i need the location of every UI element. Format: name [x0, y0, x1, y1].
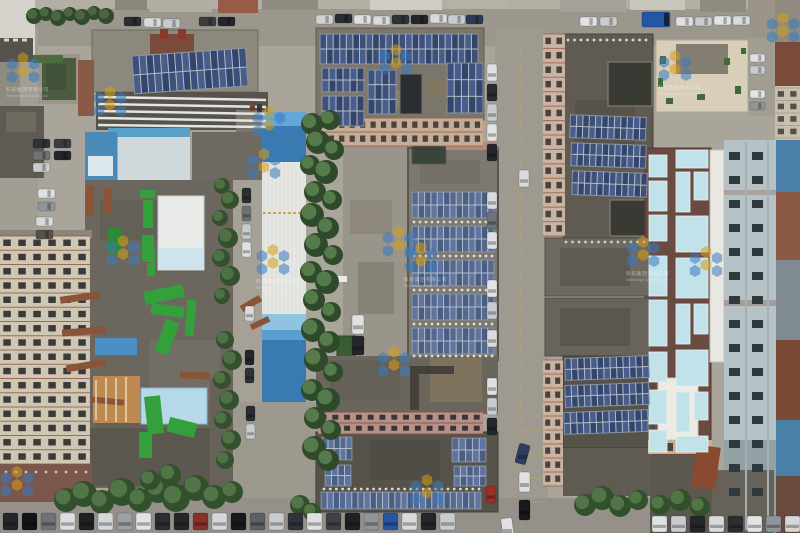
cars-bottom-row — [326, 513, 341, 530]
solar-topcenter-strip-cell — [340, 50, 346, 64]
solar-br-2-cell — [572, 397, 578, 407]
white-roof-blue-part — [158, 248, 204, 270]
solar-rb-1-cell — [609, 117, 615, 128]
skylight-panel — [694, 392, 708, 420]
solar-br-3-cell — [629, 411, 635, 421]
solar-br-1-cell — [617, 368, 623, 378]
mount-dot — [471, 488, 474, 491]
solar-rb-1-cell — [577, 115, 583, 126]
solar-tc-a — [322, 68, 364, 92]
facade-bottomright-window — [555, 392, 560, 398]
solar-bc-right-b-cell — [480, 467, 485, 476]
cars-courtyard — [245, 306, 254, 321]
solar-br-1-cell — [617, 357, 623, 367]
solar-br-1-cell — [565, 359, 571, 369]
facade-bottomleft-window — [18, 439, 26, 445]
cars-left-road — [54, 151, 71, 160]
solar-tc-c-cell — [376, 71, 382, 85]
mount-dot — [479, 289, 482, 292]
solar-rb-2-cell — [634, 157, 640, 168]
solar-br-1-cell — [630, 357, 636, 367]
cars-bottom-row — [155, 513, 170, 530]
solar-bc-left-a-cell — [335, 438, 340, 449]
solar-tc-b-cell — [344, 112, 350, 126]
facade-bottomleft-window — [3, 339, 11, 345]
cars-right-road — [486, 486, 496, 503]
facade-topcenter-window — [360, 136, 365, 142]
facade-topcenter-window — [444, 122, 449, 128]
facade-bottomright-window — [545, 406, 550, 412]
trees-right-column-highlight — [308, 132, 323, 147]
solar-rb-1-cell — [634, 117, 640, 128]
facade-farright-cream-window — [790, 91, 796, 97]
facade-topcenter-window — [381, 122, 386, 128]
solar-topcenter-strip-cell — [386, 35, 392, 49]
mount-dot — [437, 289, 440, 292]
facade-bottomleft-window — [78, 411, 86, 417]
solar-topleft-cell — [183, 72, 190, 90]
solar-br-1-cell — [630, 368, 636, 378]
cars-right-road — [487, 398, 497, 415]
solar-rb-2-cell — [597, 144, 603, 155]
green-equipment — [143, 200, 153, 228]
cars-right-road-windshield — [488, 153, 496, 156]
facade-bottomcenter-window — [415, 426, 421, 431]
facade-bottomleft-window — [48, 254, 56, 260]
mount-dot — [419, 221, 422, 224]
cars-bottom-right — [785, 516, 800, 532]
solar-rb-1-cell — [583, 116, 589, 127]
solar-central-1-cell — [457, 206, 462, 218]
facade-bottomleft-window — [33, 368, 41, 374]
facade-window — [752, 392, 763, 400]
facade-topcenter-window — [370, 136, 375, 142]
solar-topcenter-strip-cell — [439, 35, 445, 49]
cars-top-road — [163, 19, 180, 28]
solar-central-5-cell — [444, 342, 449, 354]
solar-central-3-cell — [457, 261, 462, 273]
solar-rb-2-cell — [577, 155, 583, 166]
mount-dot — [65, 471, 68, 474]
solar-br-3-cell — [609, 411, 615, 421]
solar-topleft-cell — [176, 72, 183, 90]
facade-bottomleft-window — [3, 354, 11, 360]
facade-farright-cream-window — [790, 116, 796, 122]
roof-strip-1 — [115, 0, 147, 10]
solar-central-3-cell — [463, 274, 468, 286]
mount-dot — [455, 323, 458, 326]
solar-tc-b-cell — [330, 97, 336, 111]
solar-central-2-cell — [438, 227, 443, 239]
mount-dot — [565, 241, 568, 244]
solar-central-1-cell — [469, 206, 474, 218]
cars-top-road-windshield — [363, 16, 366, 23]
mount-dot — [443, 255, 446, 258]
facade-topcenter-window — [339, 136, 344, 142]
solar-bc-right-b-cell — [461, 477, 466, 486]
facade-rightbldg-window — [545, 182, 551, 188]
cars-bottom-row — [440, 513, 455, 530]
solar-topleft-cell — [169, 73, 176, 91]
trees-right-column-highlight — [304, 438, 319, 453]
cars-bottom-row — [402, 513, 417, 530]
cars-bottom-right-windshield — [710, 525, 723, 528]
solar-topcenter-strip-cell — [439, 50, 445, 64]
cars-top-road — [373, 16, 390, 25]
solar-rb-3-cell — [604, 172, 610, 183]
solar-rb-3-cell — [579, 171, 585, 182]
facade-bottomleft-window — [33, 297, 41, 303]
solar-central-2-cell — [469, 227, 474, 239]
solar-topleft-cell — [132, 56, 139, 74]
trees-right-column-highlight — [301, 156, 313, 168]
mount-dot — [431, 221, 434, 224]
solar-tc-c-cell — [369, 100, 375, 114]
facade-bottomleft-window — [63, 240, 71, 246]
solar-central-2-cell — [438, 240, 443, 252]
solar-rb-2-cell — [578, 143, 584, 154]
mount-dot — [443, 221, 446, 224]
solar-central-5-cell — [476, 342, 481, 354]
trees-right-column-highlight — [304, 290, 318, 304]
solar-rb-3-cell — [578, 183, 584, 194]
skylight-panel — [649, 390, 667, 424]
cars-top-road — [354, 15, 371, 24]
facade-farright-cream-window — [778, 91, 784, 97]
cars-yard — [352, 336, 364, 355]
solar-central-1-cell — [463, 206, 468, 218]
trees-left-column-highlight — [221, 267, 233, 279]
facade-window — [752, 176, 763, 184]
solar-br-3 — [564, 410, 649, 435]
mount-dot — [459, 488, 462, 491]
facade-topcenter-window — [402, 136, 407, 142]
facade-rightbldg-window — [556, 81, 562, 87]
cars-bottom-right-windshield — [691, 525, 704, 528]
solar-br-1-cell — [566, 370, 572, 380]
roof-strip-4 — [370, 0, 442, 10]
solar-central-4-cell — [419, 295, 424, 307]
watermark-text-zh: 科技集团有限公司 — [658, 84, 701, 91]
watermark-text-zh: 科技集团有限公司 — [626, 270, 669, 277]
facade-bottomleft-window — [48, 453, 56, 459]
solar-rb-2-cell — [640, 146, 646, 157]
facade-bottomleft-window — [18, 339, 26, 345]
solar-central-4-cell — [482, 295, 487, 307]
facade-bottomleft-window — [33, 339, 41, 345]
solar-rb-1-cell — [596, 116, 602, 127]
cars-courtyard-windshield — [247, 414, 254, 417]
roof-strip-8 — [700, 0, 746, 12]
cars-bottom-right-windshield — [672, 525, 685, 528]
cars-bottom-right — [728, 516, 743, 532]
cars-driving-windshield — [518, 455, 527, 459]
facade-bottomcenter-window — [403, 415, 409, 420]
facade-bottomleft-window — [63, 339, 71, 345]
cars-bottom-row-windshield — [42, 522, 55, 525]
trees-bottom-highlight — [141, 471, 153, 483]
cars-righttop-road-windshield — [758, 91, 761, 97]
solar-bc-strip-cell — [334, 493, 339, 509]
mount-dot — [449, 289, 452, 292]
solar-bc-strip-cell — [469, 493, 474, 509]
facade-window — [752, 320, 763, 328]
mount-dot — [606, 39, 609, 42]
solar-bc-strip-cell — [328, 493, 333, 509]
solar-central-1-cell — [438, 193, 443, 205]
facade-topcenter-window — [475, 122, 480, 128]
solar-central-5-cell — [469, 342, 474, 354]
facade-bottomcenter-window — [462, 415, 468, 420]
cars-right-road — [487, 232, 497, 249]
cars-courtyard — [246, 406, 255, 421]
mount-dot — [403, 488, 406, 491]
mount-dot — [567, 39, 570, 42]
facade-bottomcenter-window — [450, 415, 456, 420]
cars-bottom-row — [98, 513, 113, 530]
solar-topcenter-strip-cell — [459, 50, 465, 64]
solar-topcenter-strip-cell — [472, 35, 478, 49]
solar-central-3-cell — [450, 261, 455, 273]
facade-bottomleft-window — [33, 311, 41, 317]
cars-left-road — [33, 163, 50, 172]
solar-rb-3 — [572, 171, 648, 198]
facade-bottomcenter-window — [427, 426, 433, 431]
cars-right-road — [487, 144, 497, 161]
cars-bottom-row — [269, 513, 284, 530]
trees-right-column-highlight — [321, 111, 333, 123]
trees-topleft-highlight — [27, 9, 37, 19]
facade-bottomleft-window — [78, 339, 86, 345]
solar-rb-3-cell — [572, 183, 578, 194]
cars-courtyard-windshield — [243, 214, 250, 217]
mount-dot — [413, 355, 416, 358]
solar-br-1-cell — [585, 369, 591, 379]
facade-window — [729, 392, 740, 400]
solar-bc-right-a-cell — [459, 439, 465, 450]
cars-top-road-windshield — [133, 18, 136, 25]
cars-right-road — [487, 302, 497, 319]
solar-bc-right-a-cell — [466, 439, 472, 450]
facade-bottomleft-window — [33, 453, 41, 459]
solar-topcenter-strip-cell — [413, 35, 419, 49]
trees-right-column-highlight — [324, 363, 336, 375]
facade-bottomleft-window — [18, 297, 26, 303]
solar-tc-a-cell — [330, 81, 336, 92]
facade-bottomleft-window — [3, 453, 11, 459]
solar-tc-right-cell — [476, 80, 482, 96]
solar-central-2-cell — [457, 227, 462, 239]
cars-top-road — [676, 17, 693, 26]
cars-bottom-row-windshield — [137, 522, 150, 525]
mount-dot — [366, 488, 369, 491]
solar-br-1-cell — [591, 369, 597, 379]
solar-rb-1-cell — [608, 128, 614, 139]
solar-bc-right-a-cell — [480, 451, 486, 462]
facade-bottomleft-window — [48, 354, 56, 360]
solar-tc-right-cell — [448, 64, 454, 80]
facade-rightbldg-window — [545, 38, 551, 44]
facade-bottomleft-window — [63, 439, 71, 445]
rust-beam — [86, 186, 94, 216]
facade-bottomright-window — [545, 378, 550, 384]
solar-central-5-cell — [457, 342, 462, 354]
left-block — [0, 62, 20, 108]
solar-rb-2 — [571, 143, 647, 169]
farright-blue-a — [775, 140, 800, 192]
solar-central-3-cell — [469, 261, 474, 273]
facade-topcenter-window — [381, 136, 386, 142]
facade-bottomright-window — [555, 378, 560, 384]
solar-bc-strip-cell — [377, 493, 382, 509]
solar-rb-3-cell — [598, 172, 604, 183]
solar-central-5 — [412, 328, 494, 354]
solar-central-1-cell — [463, 193, 468, 205]
skylight-panel — [676, 350, 708, 386]
solar-tc-b-cell — [351, 112, 357, 126]
cars-right-road — [487, 418, 497, 435]
solar-br-1-cell — [643, 356, 649, 366]
facade-bottomright-window — [545, 462, 550, 468]
solar-rb-2-cell — [584, 144, 590, 155]
facade-bottomleft-window — [33, 439, 41, 445]
mount-dot — [360, 488, 363, 491]
mount-dot — [580, 39, 583, 42]
solar-topcenter-strip-cell — [419, 35, 425, 49]
solar-tc-c-cell — [376, 100, 382, 114]
solar-tc-b-cell — [337, 97, 343, 111]
facade-bottomleft-window — [18, 368, 26, 374]
solar-central-5-cell — [419, 329, 424, 341]
solar-br-2-cell — [597, 385, 603, 395]
solar-bc-strip-cell — [395, 493, 400, 509]
trees-right-column-highlight — [316, 162, 331, 177]
cars-left-road-windshield — [47, 203, 50, 210]
cars-top-road-windshield — [172, 20, 175, 27]
mount-dot — [443, 289, 446, 292]
mount-dot — [479, 323, 482, 326]
trees-left-column-highlight — [213, 211, 223, 221]
trees-topleft-highlight — [99, 9, 109, 19]
cars-top-road — [733, 16, 750, 25]
solar-central-4-cell — [438, 295, 443, 307]
cars-bottom-row-windshield — [156, 522, 169, 525]
solar-central-5-cell — [419, 342, 424, 354]
cars-left-road — [36, 230, 53, 239]
solar-br-3-cell — [577, 412, 583, 422]
solar-bc-strip-cell — [371, 493, 376, 509]
solar-topleft-cell — [154, 55, 161, 73]
solar-central-1-cell — [413, 193, 418, 205]
cars-yard-windshield — [353, 346, 363, 350]
facade-rightbldg-window — [556, 153, 562, 159]
mount-dot — [431, 289, 434, 292]
solar-central-5-cell — [431, 342, 436, 354]
solar-rb-2-cell — [590, 155, 596, 166]
facade-bottomleft-window — [48, 297, 56, 303]
mount-dot — [465, 488, 468, 491]
solar-central-4-cell — [469, 308, 474, 320]
facade-window — [752, 488, 763, 496]
facade-rightbldg-window — [556, 110, 562, 116]
solar-central-5-cell — [425, 342, 430, 354]
facade-window — [729, 176, 740, 184]
mount-dot — [485, 355, 488, 358]
trees-topleft-highlight — [51, 11, 61, 21]
solar-bc-strip-cell — [352, 493, 357, 509]
solar-br-3-cell — [616, 411, 622, 421]
facade-bottomleft-window — [63, 268, 71, 274]
skylight-panel — [676, 304, 690, 344]
watermark-text-en: Technology Group Co., Ltd. — [625, 278, 669, 282]
solar-br-3-cell — [596, 412, 602, 422]
solar-bc-right-a — [452, 438, 486, 462]
solar-bc-strip — [321, 492, 481, 509]
mount-dot — [419, 355, 422, 358]
facade-rightbldg-window — [545, 167, 551, 173]
mount-dot — [619, 39, 622, 42]
solar-tc-b-cell — [351, 97, 357, 111]
facade-bottomleft-window — [63, 311, 71, 317]
cars-courtyard-windshield — [246, 358, 253, 361]
mount-dot — [372, 488, 375, 491]
watermark-text-en: Technology Group Co., Ltd. — [255, 286, 299, 290]
solar-central-4-cell — [476, 295, 481, 307]
cars-top-road-windshield — [475, 16, 478, 23]
solar-rb-2-cell — [603, 144, 609, 155]
cars-righttop-road — [750, 54, 765, 62]
solar-central-5-cell — [425, 329, 430, 341]
facade-window — [752, 296, 763, 304]
facade-bottomleft-window — [48, 282, 56, 288]
mount-dot — [612, 39, 615, 42]
cars-right-road — [487, 212, 497, 229]
green-equipment — [735, 86, 741, 94]
solar-central-2-cell — [463, 227, 468, 239]
cars-bottom-row — [288, 513, 303, 530]
cars-right-road — [487, 64, 497, 81]
cars-right-road-windshield — [488, 241, 496, 244]
facade-bottomleft-window — [63, 354, 71, 360]
solar-topleft-cell — [161, 54, 168, 72]
facade-window — [729, 248, 740, 256]
cars-left-road-windshield — [63, 140, 66, 147]
solar-bc-right-b-cell — [480, 477, 485, 486]
facade-bottomright-window — [545, 392, 550, 398]
scooters — [250, 103, 255, 111]
trees-right-column-highlight — [302, 205, 317, 220]
facade-bottomleft-window — [3, 382, 11, 388]
solar-br-2-cell — [610, 384, 616, 394]
solar-bc-left-b-cell — [326, 476, 332, 486]
solar-bc-right-a-cell — [459, 451, 465, 462]
trees-left-column-highlight — [222, 192, 233, 203]
facade-bottomleft-window — [18, 382, 26, 388]
cars-bottom-row — [231, 513, 246, 530]
solar-topcenter-strip-cell — [446, 50, 452, 64]
mount-dot — [341, 488, 344, 491]
solar-topleft-cell — [162, 73, 169, 91]
facade-bottomright-window — [555, 420, 560, 426]
cars-bottom-right — [671, 516, 686, 532]
facade-bottomleft-window — [3, 311, 11, 317]
solar-rb-1-cell — [583, 127, 589, 138]
facade-window — [729, 368, 740, 376]
facade-window — [752, 248, 763, 256]
trees-right-column-highlight — [323, 191, 335, 203]
trees-bottom-highlight — [592, 488, 607, 503]
solar-central-4-cell — [469, 295, 474, 307]
